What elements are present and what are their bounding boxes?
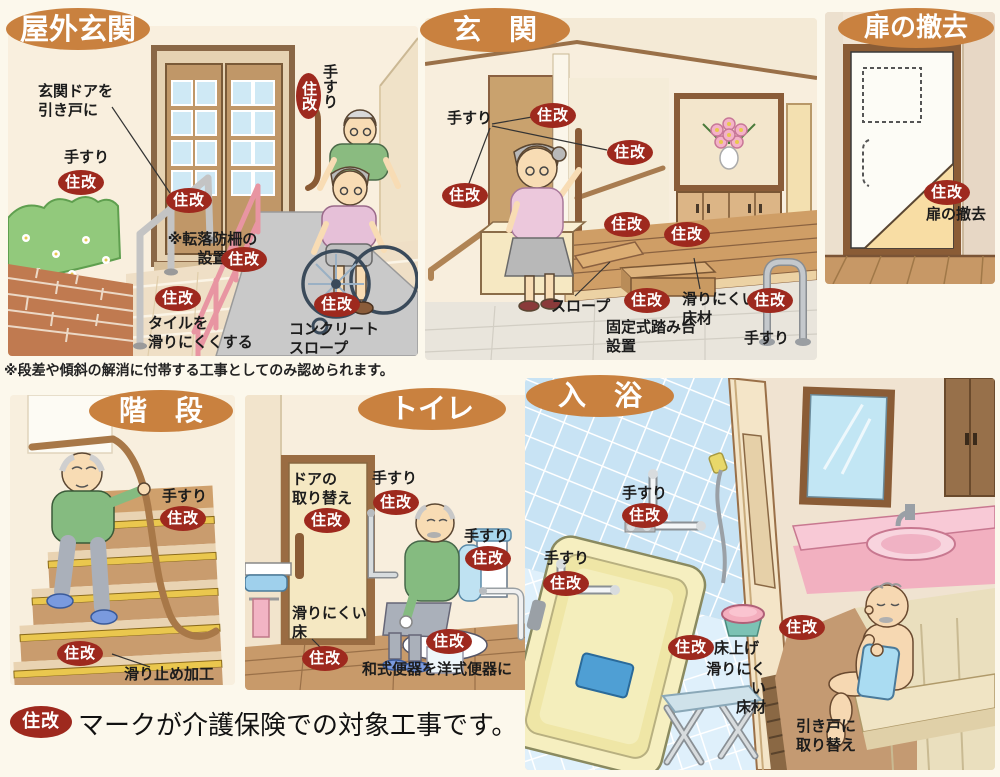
- label-entrance-handrail-right: 手すり: [744, 329, 789, 348]
- title-door-removal: 扉の撤去: [838, 8, 994, 48]
- title-bathing: 入 浴: [526, 375, 674, 417]
- juukai-badge: 住改: [57, 641, 103, 666]
- juukai-badge: 住改: [166, 188, 212, 213]
- juukai-badge: 住改: [604, 212, 650, 237]
- label-concrete-slope: コンクリート スロープ: [289, 320, 379, 358]
- panel-door-removal: [825, 12, 995, 284]
- stairs-illustration: [10, 395, 235, 685]
- label-handrail-left: 手すり: [64, 148, 109, 167]
- label-bath-antislip: 滑りにくい 床材: [694, 660, 766, 716]
- title-toilet: トイレ: [358, 388, 506, 430]
- label-floor-raise: 床上げ: [714, 639, 759, 658]
- juukai-badge: 住改: [924, 180, 970, 205]
- label-sliding-door-replace: 引き戸に 取り替え: [796, 717, 856, 755]
- label-bath-handrail-wall: 手すり: [622, 484, 667, 503]
- juukai-badge: 住改: [304, 508, 350, 533]
- label-bath-handrail-tub: 手すり: [544, 549, 589, 568]
- door-removal-illustration: [825, 12, 995, 284]
- juukai-badge: 住改: [664, 222, 710, 247]
- juukai-badge: 住改: [622, 503, 668, 528]
- label-toilet-door-replace: ドアの 取り替え: [292, 470, 352, 508]
- note-outdoor-entrance: ※段差や傾斜の解消に付帯する工事としてのみ認められます。: [4, 360, 394, 380]
- juukai-badge: 住改: [465, 546, 511, 571]
- juukai-badge: 住改: [160, 506, 206, 531]
- title-outdoor-entrance: 屋外玄関: [6, 8, 150, 50]
- juukai-badge: 住改: [373, 490, 419, 515]
- juukai-badge: 住改: [58, 170, 104, 195]
- juukai-badge: 住改: [530, 103, 576, 128]
- infographic-canvas: 屋外玄関 玄 関 扉の撤去 階 段 トイレ 入 浴 玄関ドアを 引き戸に 手すり…: [0, 0, 1000, 777]
- label-tile-antislip: タイルを 滑りにくくする: [148, 314, 253, 352]
- label-door-removal: 扉の撤去: [926, 205, 986, 224]
- label-entrance-handrail: 手すり: [447, 109, 492, 128]
- footer-caption: マークが介護保険での対象工事です。: [78, 705, 517, 742]
- juukai-badge: 住改: [314, 292, 360, 317]
- juukai-badge: 住改: [155, 286, 201, 311]
- label-toilet-antislip: 滑りにくい 床: [292, 604, 367, 642]
- title-entrance: 玄 関: [420, 8, 570, 52]
- label-stairs-handrail: 手すり: [162, 487, 207, 506]
- juukai-badge: 住改: [543, 571, 589, 596]
- title-stairs: 階 段: [89, 390, 233, 432]
- juukai-badge: 住改: [426, 629, 472, 654]
- label-door-to-sliding: 玄関ドアを 引き戸に: [38, 82, 113, 120]
- juukai-badge: 住改: [607, 140, 653, 165]
- juukai-badge-legend: 住改: [10, 706, 72, 738]
- juukai-badge: 住改: [668, 635, 714, 660]
- juukai-badge: 住改: [779, 615, 825, 640]
- juukai-badge: 住改: [442, 183, 488, 208]
- label-entrance-antislip: 滑りにくい 床材: [682, 290, 757, 328]
- label-toilet-handrail-top: 手すり: [372, 469, 417, 488]
- label-entrance-slope: スロープ: [551, 297, 610, 316]
- label-western-toilet: 和式便器を洋式便器に: [362, 660, 512, 679]
- label-toilet-handrail-right: 手すり: [464, 527, 509, 546]
- label-handrail-right: 手すり: [322, 64, 337, 109]
- juukai-badge: 住改: [296, 73, 321, 119]
- label-stairs-antislip: 滑り止め加工: [124, 665, 214, 684]
- juukai-badge: 住改: [624, 288, 670, 313]
- juukai-badge: 住改: [221, 247, 267, 272]
- panel-stairs: [10, 395, 235, 685]
- juukai-badge: 住改: [302, 646, 348, 671]
- juukai-badge: 住改: [747, 288, 793, 313]
